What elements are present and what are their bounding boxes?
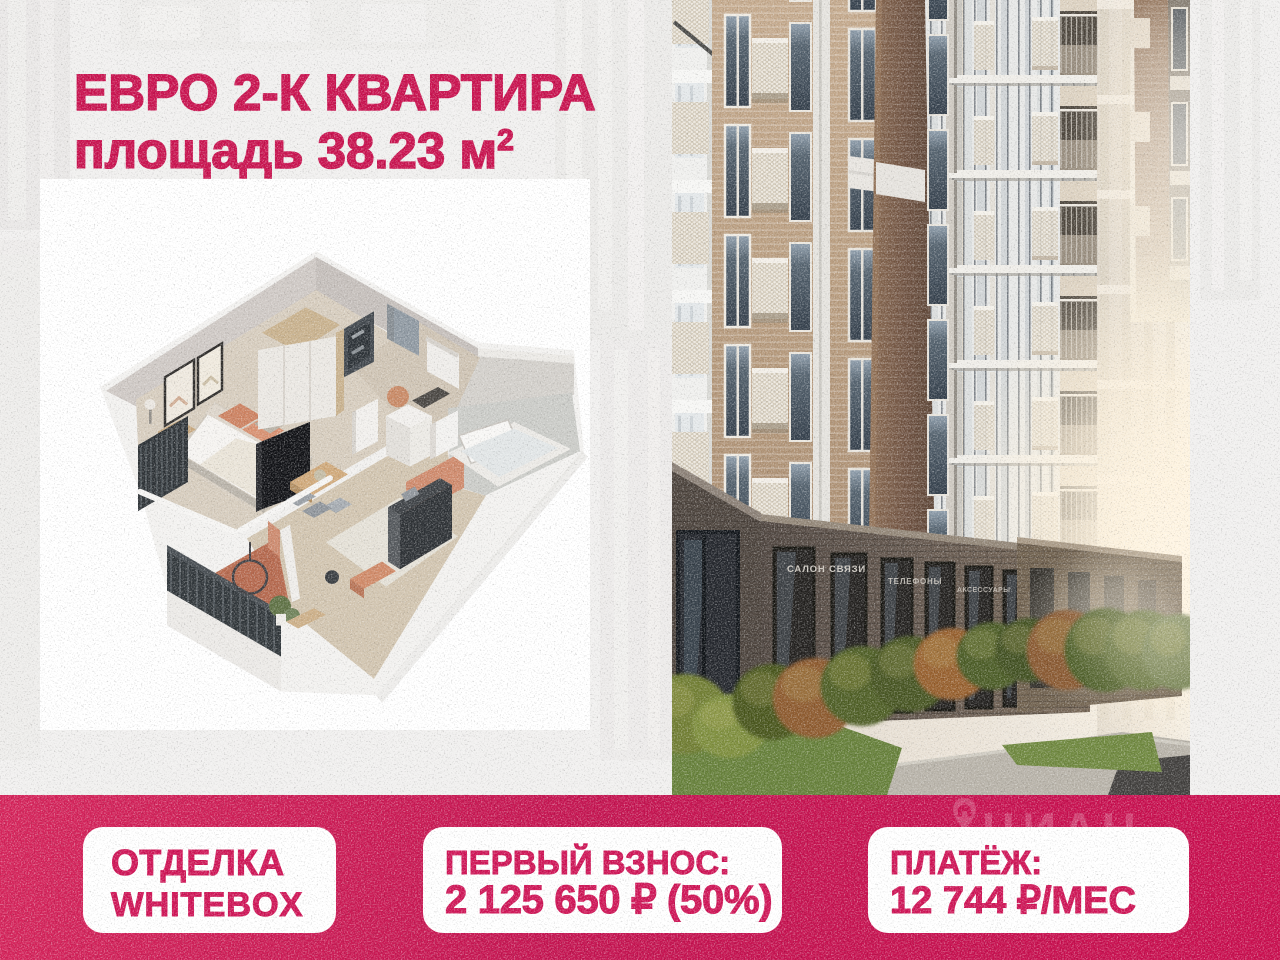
svg-text:САЛОН СВЯЗИ: САЛОН СВЯЗИ: [787, 564, 866, 575]
svg-text:АКСЕССУАРЫ: АКСЕССУАРЫ: [957, 587, 1010, 594]
svg-text:ТЕЛЕФОНЫ: ТЕЛЕФОНЫ: [888, 577, 942, 586]
